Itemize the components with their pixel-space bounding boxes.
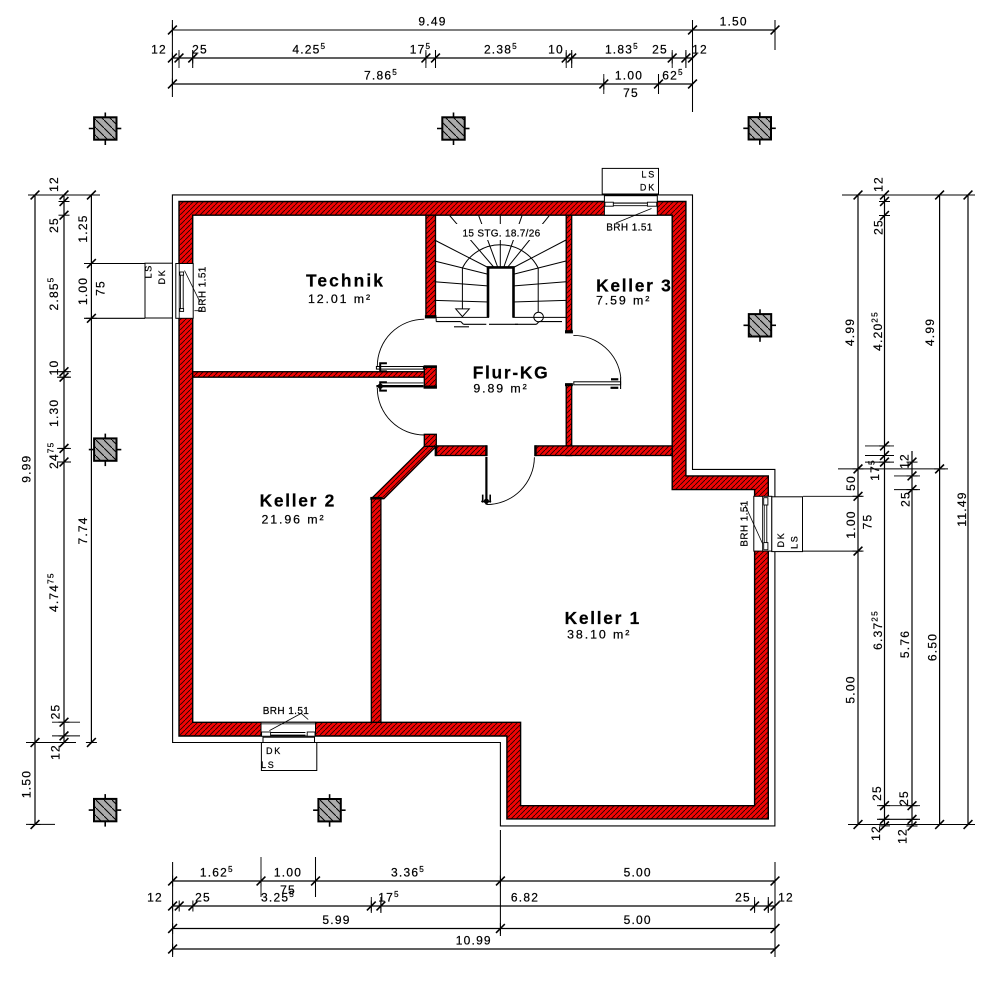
svg-text:25: 25 [870, 785, 884, 801]
svg-text:12: 12 [872, 176, 886, 192]
svg-text:25: 25 [195, 891, 211, 905]
svg-text:4.99: 4.99 [843, 318, 857, 346]
svg-text:1.00: 1.00 [844, 510, 858, 538]
svg-text:9.89 m²: 9.89 m² [473, 382, 528, 396]
svg-text:10: 10 [548, 43, 564, 57]
svg-text:15 STG. 18.7/26: 15 STG. 18.7/26 [463, 229, 541, 240]
svg-text:12: 12 [49, 744, 63, 760]
svg-text:50: 50 [844, 475, 858, 491]
svg-text:6.82: 6.82 [511, 891, 539, 905]
svg-text:1.00: 1.00 [76, 277, 90, 305]
svg-text:DK: DK [640, 183, 656, 193]
svg-text:12.01 m²: 12.01 m² [308, 292, 372, 306]
svg-text:1.30: 1.30 [47, 399, 61, 427]
svg-text:12: 12 [778, 891, 794, 905]
svg-text:4.99: 4.99 [923, 318, 937, 346]
svg-text:Flur-KG: Flur-KG [473, 363, 550, 383]
svg-text:BRH 1.51: BRH 1.51 [740, 500, 751, 547]
svg-text:38.10 m²: 38.10 m² [567, 628, 631, 642]
svg-text:7.59 m²: 7.59 m² [596, 294, 651, 308]
svg-text:5.00: 5.00 [624, 866, 652, 880]
svg-text:5.00: 5.00 [844, 675, 858, 703]
svg-text:9.99: 9.99 [20, 455, 34, 483]
svg-text:Keller 1: Keller 1 [565, 608, 641, 628]
svg-text:LS: LS [261, 760, 276, 770]
svg-text:75: 75 [861, 514, 875, 530]
svg-text:12: 12 [147, 891, 163, 905]
svg-text:75: 75 [623, 86, 639, 100]
svg-text:9.49: 9.49 [418, 15, 446, 29]
svg-text:BRH 1.51: BRH 1.51 [263, 706, 310, 717]
svg-text:25: 25 [872, 219, 886, 235]
svg-text:1.00: 1.00 [274, 866, 302, 880]
svg-text:12: 12 [692, 43, 708, 57]
svg-text:21.96 m²: 21.96 m² [261, 513, 325, 527]
svg-text:Keller 2: Keller 2 [260, 491, 336, 511]
svg-text:25: 25 [192, 43, 208, 57]
svg-text:DK: DK [157, 268, 167, 284]
svg-text:25: 25 [47, 217, 61, 233]
svg-text:7.74: 7.74 [76, 516, 90, 544]
svg-text:DK: DK [266, 746, 282, 756]
svg-text:BRH 1.51: BRH 1.51 [606, 223, 653, 234]
svg-text:10.99: 10.99 [456, 934, 492, 948]
svg-text:LS: LS [790, 534, 800, 549]
svg-text:1.00: 1.00 [615, 69, 643, 83]
svg-text:12: 12 [47, 176, 61, 192]
svg-text:12: 12 [869, 825, 883, 841]
svg-text:DK: DK [776, 531, 786, 547]
svg-text:12: 12 [898, 453, 912, 469]
svg-text:6.50: 6.50 [926, 633, 940, 661]
svg-text:Technik: Technik [306, 271, 385, 291]
svg-text:11.49: 11.49 [955, 491, 969, 526]
svg-text:BRH 1.51: BRH 1.51 [198, 266, 209, 313]
svg-text:LS: LS [641, 170, 656, 180]
svg-text:25: 25 [899, 491, 913, 507]
svg-text:5.76: 5.76 [898, 630, 912, 658]
svg-text:25: 25 [735, 891, 751, 905]
svg-text:25: 25 [897, 790, 911, 806]
svg-text:5.00: 5.00 [624, 913, 652, 927]
svg-text:25: 25 [49, 704, 63, 720]
svg-text:1.50: 1.50 [720, 15, 748, 29]
svg-text:12: 12 [151, 43, 167, 57]
svg-text:LS: LS [144, 264, 154, 279]
svg-text:75: 75 [94, 280, 108, 296]
svg-text:10: 10 [47, 360, 61, 376]
svg-text:5.99: 5.99 [322, 913, 350, 927]
svg-text:25: 25 [652, 43, 668, 57]
svg-text:12: 12 [896, 828, 910, 844]
svg-text:1.50: 1.50 [20, 770, 34, 798]
svg-text:1.25: 1.25 [76, 214, 90, 242]
